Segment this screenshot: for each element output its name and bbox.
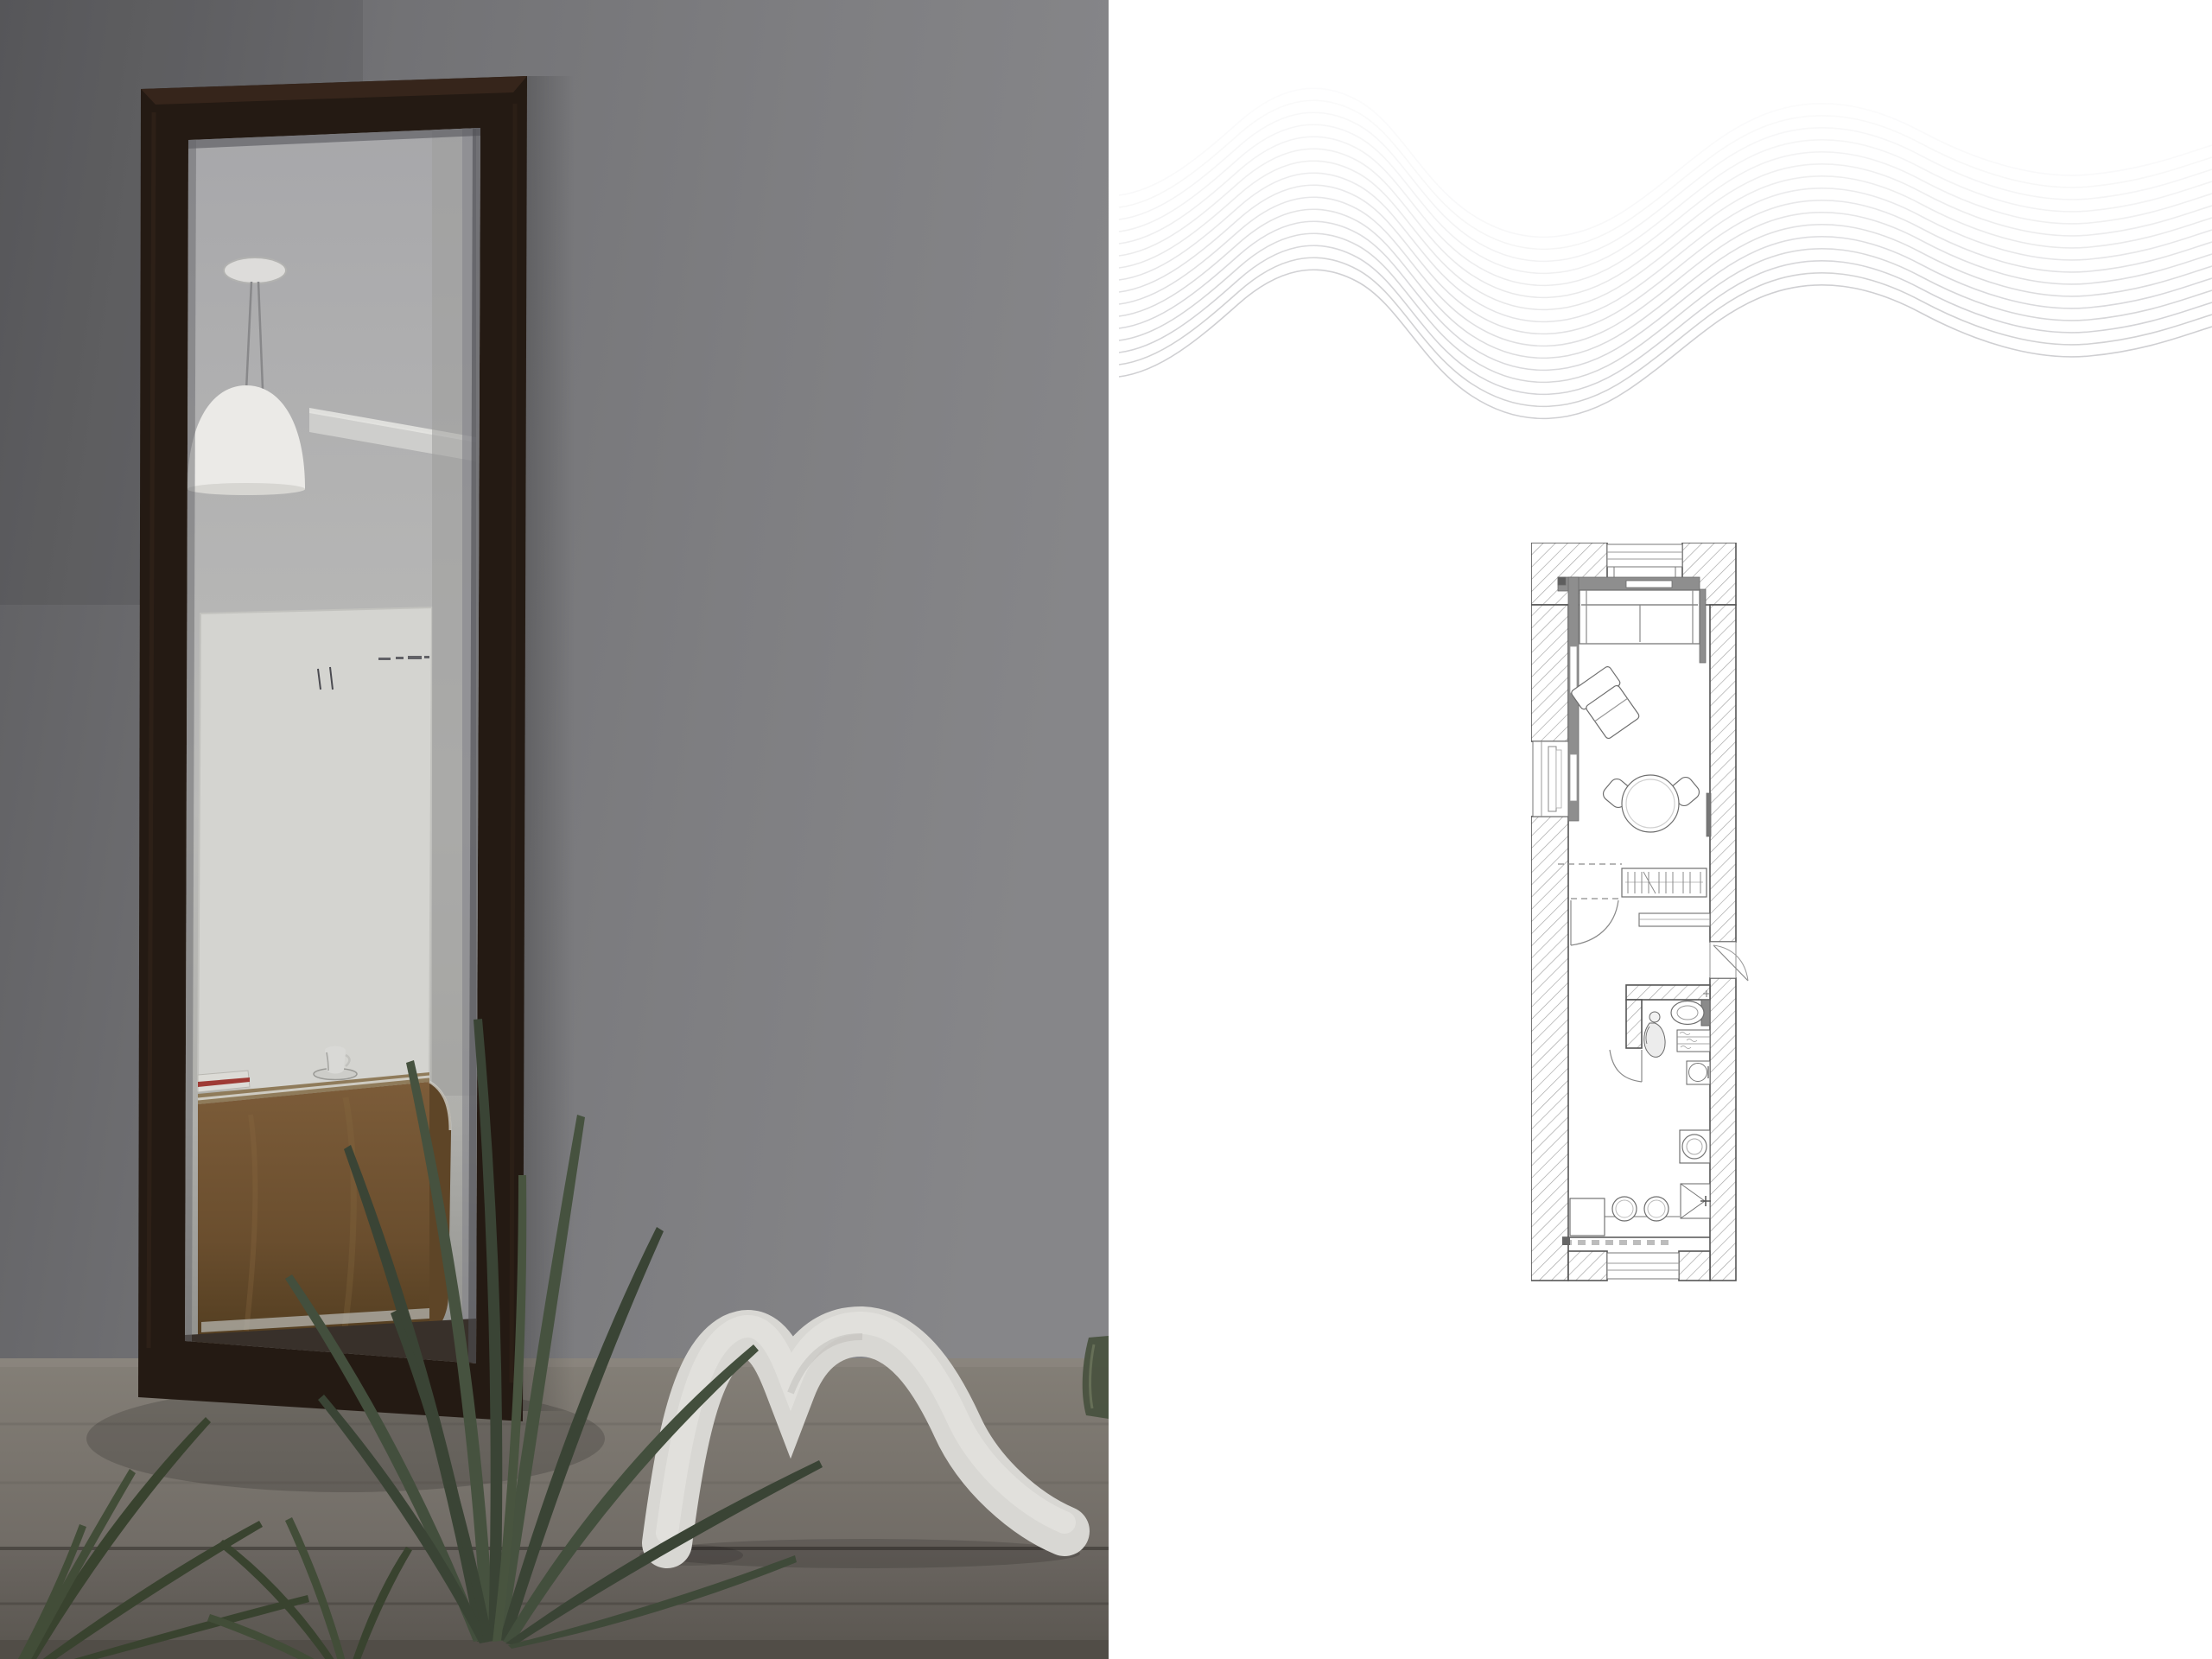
radiator xyxy=(1707,793,1711,836)
bottom-window xyxy=(1607,1253,1679,1279)
kitchen-appliance-block xyxy=(1570,1198,1605,1236)
white-canvas-reflection xyxy=(198,607,432,1090)
toilet xyxy=(1671,1000,1710,1026)
floor-plan xyxy=(1531,543,1773,1286)
balcony-door xyxy=(1533,741,1568,817)
living-room-furniture xyxy=(1570,590,1701,832)
teak-sideboard-reflection xyxy=(185,1072,476,1363)
sofa xyxy=(1580,590,1700,644)
interior-door xyxy=(1571,900,1618,945)
shoe-cabinet xyxy=(1639,913,1710,926)
interior-photo xyxy=(0,0,1109,1659)
wardrobe-with-hangers xyxy=(1622,868,1707,897)
entrance-door xyxy=(1710,942,1748,981)
bathroom-shelves xyxy=(1677,1030,1710,1052)
bathroom-wall-top xyxy=(1626,985,1710,1000)
interior-photo-svg xyxy=(0,0,1109,1659)
glass-vase xyxy=(1083,1336,1109,1419)
presentation-canvas xyxy=(0,0,2212,1659)
bathroom-door xyxy=(1610,1050,1642,1082)
round-dining-table xyxy=(1622,775,1679,832)
washbasin-figure xyxy=(1644,1012,1665,1057)
wave-pattern xyxy=(1109,0,2212,449)
counter-end-post xyxy=(1562,1237,1570,1245)
kitchen xyxy=(1562,1061,1711,1245)
washing-machine xyxy=(1680,1130,1710,1163)
utility-sink xyxy=(1687,1061,1710,1084)
armchair xyxy=(1570,665,1643,741)
plan-board xyxy=(1109,0,2212,1659)
wave-fade xyxy=(1109,0,2212,285)
bathroom-wall-left xyxy=(1626,1000,1642,1048)
mirror xyxy=(138,76,527,1421)
corner-cabinet xyxy=(1681,1184,1711,1218)
